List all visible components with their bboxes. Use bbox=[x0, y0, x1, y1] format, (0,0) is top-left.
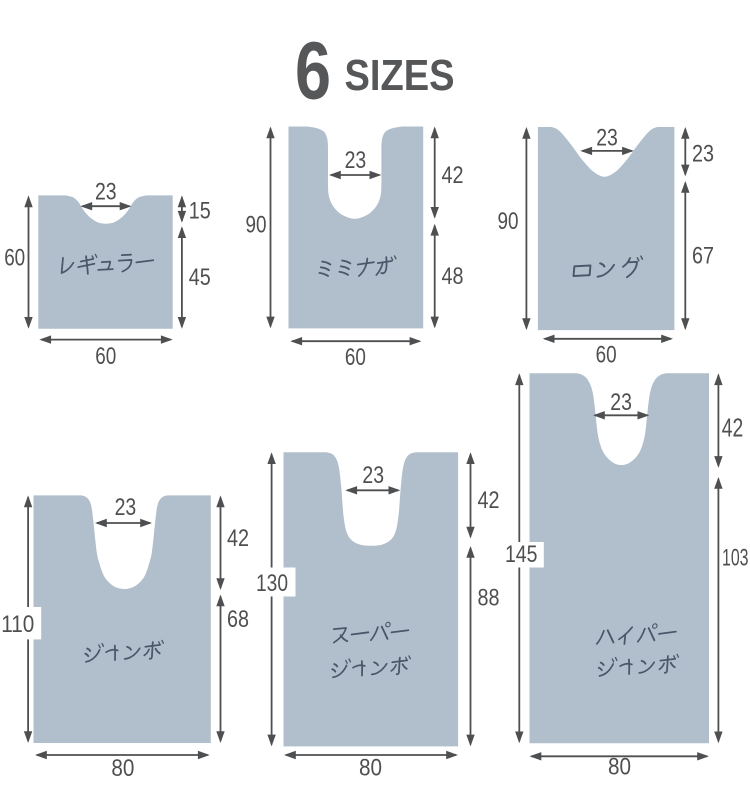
svg-text:67: 67 bbox=[692, 243, 714, 270]
svg-text:145: 145 bbox=[505, 541, 538, 568]
svg-text:68: 68 bbox=[227, 606, 249, 633]
svg-text:110: 110 bbox=[1, 611, 34, 638]
svg-text:80: 80 bbox=[359, 755, 382, 782]
svg-text:130: 130 bbox=[256, 570, 288, 597]
svg-text:80: 80 bbox=[111, 755, 134, 782]
svg-text:15: 15 bbox=[189, 198, 211, 225]
svg-text:90: 90 bbox=[498, 208, 519, 235]
svg-text:6: 6 bbox=[295, 26, 331, 117]
svg-text:90: 90 bbox=[246, 211, 267, 238]
svg-text:42: 42 bbox=[478, 487, 500, 514]
svg-text:42: 42 bbox=[722, 413, 744, 443]
svg-text:60: 60 bbox=[95, 343, 116, 370]
svg-text:23: 23 bbox=[362, 462, 384, 489]
svg-text:80: 80 bbox=[608, 754, 631, 781]
svg-text:60: 60 bbox=[4, 245, 25, 272]
svg-text:23: 23 bbox=[345, 147, 367, 174]
svg-text:48: 48 bbox=[442, 263, 464, 290]
svg-text:SIZES: SIZES bbox=[345, 51, 455, 100]
svg-text:23: 23 bbox=[115, 494, 137, 521]
svg-text:23: 23 bbox=[610, 389, 632, 416]
svg-text:23: 23 bbox=[95, 178, 117, 205]
svg-text:23: 23 bbox=[596, 124, 618, 151]
svg-text:103: 103 bbox=[722, 544, 749, 571]
svg-text:88: 88 bbox=[478, 585, 500, 612]
svg-text:60: 60 bbox=[345, 344, 366, 371]
svg-text:60: 60 bbox=[596, 342, 617, 369]
svg-text:45: 45 bbox=[189, 264, 211, 291]
svg-text:42: 42 bbox=[442, 162, 464, 189]
svg-text:23: 23 bbox=[692, 140, 714, 167]
svg-text:42: 42 bbox=[227, 525, 249, 552]
